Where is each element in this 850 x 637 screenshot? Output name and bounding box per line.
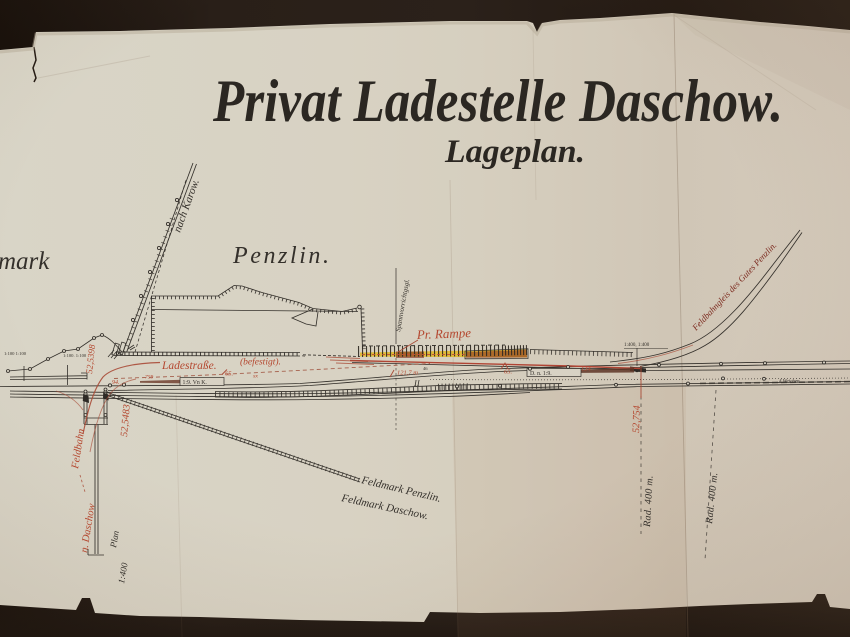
- svg-text:94.: 94.: [112, 379, 120, 386]
- svg-text:52,754: 52,754: [631, 405, 643, 433]
- svg-text:Lageplan.: Lageplan.: [444, 134, 585, 170]
- svg-text:46: 46: [423, 366, 428, 371]
- svg-text:1:100. 1:100: 1:100. 1:100: [63, 353, 87, 358]
- svg-text:Ladestraße.: Ladestraße.: [161, 360, 217, 372]
- svg-text:mark: mark: [0, 248, 50, 275]
- svg-text:759: 759: [145, 375, 154, 381]
- svg-text:Pr. Rampe: Pr. Rampe: [416, 325, 472, 342]
- svg-text:1:9. Vn K.: 1:9. Vn K.: [183, 380, 208, 386]
- svg-text:65.: 65.: [225, 371, 234, 378]
- svg-text:xx: xx: [252, 374, 258, 380]
- svg-text:Privat Ladestelle Daschow.: Privat Ladestelle Daschow.: [212, 67, 783, 135]
- svg-text:121,7 m: 121,7 m: [397, 370, 418, 377]
- svg-text:1:400, 1:400: 1:400, 1:400: [624, 343, 650, 348]
- svg-text:D. n. 1:9.: D. n. 1:9.: [530, 371, 552, 377]
- svg-text:(befestigt).: (befestigt).: [240, 357, 281, 368]
- svg-text:65.: 65.: [504, 369, 513, 376]
- svg-text:Penzlin.: Penzlin.: [232, 243, 329, 269]
- svg-text:II: II: [413, 378, 421, 388]
- svg-text:1:100 1:100: 1:100 1:100: [4, 351, 27, 356]
- svg-text:4 Weichen: 4 Weichen: [779, 380, 800, 385]
- svg-text:134: 134: [581, 366, 592, 373]
